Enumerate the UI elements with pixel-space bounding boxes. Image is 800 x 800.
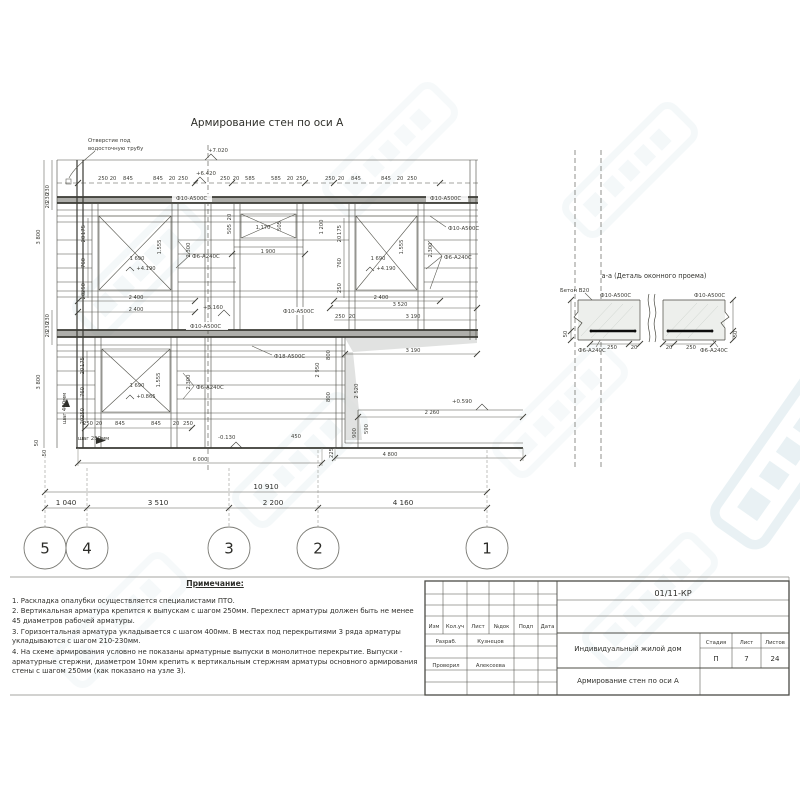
dim-label: +7.020 [208, 148, 229, 154]
axis-number: 5 [40, 540, 50, 558]
project-title: Индивидуальный жилой дом [574, 645, 681, 653]
dim-label: 20 [96, 421, 103, 427]
dim-label: 2 400 [374, 295, 389, 301]
dim-label: 6 000 [193, 457, 208, 463]
dim-label: 760 [337, 258, 343, 268]
dim-label: 1 200 [319, 220, 325, 235]
axis-segment-dimension: 2 200 [263, 498, 284, 507]
dim-label: 845 [123, 176, 133, 182]
tb-stage-value: П [713, 655, 718, 663]
overall-dimension: 10 910 [253, 482, 279, 491]
dim-label: 3 190 [406, 348, 421, 354]
dim-label: 250 [296, 176, 306, 182]
dim-label: +4.190 [376, 266, 395, 272]
dim-label: 800 [326, 350, 332, 360]
tb-role-razrab: Разраб. [436, 639, 457, 645]
tb-col-koluch: Кол.уч [446, 624, 464, 630]
dim-label: 450 [291, 434, 301, 440]
dim-label: 250 [220, 176, 230, 182]
dim-label: 20 [169, 176, 176, 182]
dim-label: 900 [352, 428, 358, 438]
detail-section-a-a [574, 294, 729, 342]
dim-label: 250 [607, 345, 617, 351]
callout-label: Ф10-А500С [600, 293, 631, 299]
dim-label: 20 [45, 331, 51, 338]
callout-label: Ф6-А240С [578, 348, 606, 354]
dim-label: 20 [349, 314, 356, 320]
dim-label: 20 [80, 368, 86, 375]
dim-label: 3 520 [393, 302, 408, 308]
callout-label: Отверстие под [88, 138, 131, 144]
dim-label: 505 [227, 224, 233, 234]
dim-label: 50 [34, 440, 40, 447]
dim-label: 585 [271, 176, 281, 182]
callout-label: Ф6-А240С [444, 255, 472, 261]
window-outlines-and-diagonals [99, 214, 417, 412]
dim-label: 3 190 [406, 314, 421, 320]
axis-number: 3 [224, 540, 234, 558]
dim-label: 1 900 [261, 249, 276, 255]
dim-label: 250 [178, 176, 188, 182]
dim-label: 2.300 [186, 375, 192, 390]
dim-label: 590 [364, 424, 370, 434]
tb-col-podp: Подп [519, 624, 533, 630]
tb-stage-header: Стадия [706, 640, 726, 646]
axis-number: 2 [313, 540, 323, 558]
callout-label: Ф6-А240С [192, 254, 220, 260]
dim-label: 50 [563, 331, 569, 338]
callout-label: шаг 250мм [78, 436, 109, 442]
dim-label: 800 [326, 392, 332, 402]
tb-col-ndok: №док [494, 624, 510, 630]
tb-sheet-header: Лист [740, 640, 753, 646]
dim-label: 20 [338, 176, 345, 182]
dim-label: 20 [45, 202, 51, 209]
tb-col-izm: Изм [429, 624, 440, 630]
cad-drawing-canvas: Армирование стен по оси А а-а (Деталь ок… [0, 0, 800, 800]
dim-label: -0.130 [218, 435, 236, 441]
dim-label: 225 [329, 448, 335, 458]
dim-label: 845 [115, 421, 125, 427]
dim-label: 1 690 [371, 256, 386, 262]
dim-label: 20 [631, 345, 638, 351]
dim-label: 20 [173, 421, 180, 427]
callout-label: Ф6-А240С [196, 385, 224, 391]
dim-label: 250 [83, 421, 93, 427]
callout-label: Ф10-А500С [430, 196, 461, 202]
callout-label: водосточную трубу [88, 146, 144, 152]
dim-label: 250 [98, 176, 108, 182]
dim-label: 20 [397, 176, 404, 182]
dim-label: 585 [245, 176, 255, 182]
dim-label: 1 690 [130, 383, 145, 389]
tb-sheets-header: Листов [765, 640, 785, 646]
dim-label: 175 [81, 225, 87, 235]
dim-label: 20 [227, 214, 233, 221]
dim-label: 760 [80, 387, 86, 397]
note-item: 4. На схеме армирования условно не показ… [12, 648, 418, 677]
axis-number: 1 [482, 540, 492, 558]
dim-label: 845 [351, 176, 361, 182]
dim-label: 760 [81, 258, 87, 268]
axis-segment-dimension: 3 510 [148, 498, 169, 507]
dim-label: 2 520 [354, 384, 360, 399]
dim-label: 20 [337, 236, 343, 243]
note-item: 3. Горизонтальная арматура укладывается … [12, 628, 418, 647]
dim-label: 175 [337, 225, 343, 235]
tb-name-proveril: Алексеева [476, 663, 505, 669]
dim-label: +0.865 [136, 394, 155, 400]
detail-title: а-а (Деталь оконного проема) [602, 272, 707, 280]
note-item: 2. Вертикальная арматура крепится к выпу… [12, 607, 418, 626]
drawing-title: Армирование стен по оси А [191, 117, 344, 129]
callout-label: Ф10-А500С [190, 324, 221, 330]
dim-label: 250 [80, 408, 86, 418]
axis-number: 4 [82, 540, 92, 558]
dim-label: 50 [42, 450, 48, 457]
doc-number: 01/11-КР [654, 588, 691, 598]
dim-label: 20 [110, 176, 117, 182]
tb-sheets-value: 24 [771, 655, 780, 663]
dim-label: 250 [686, 345, 696, 351]
dim-label: 20 [287, 176, 294, 182]
dim-label: 50 [733, 331, 739, 338]
dim-label: +4.190 [136, 266, 155, 272]
dim-label: +0.590 [452, 399, 473, 405]
dim-label: 20 [81, 236, 87, 243]
callout-label: Ф18-А500С [274, 354, 305, 360]
dim-label: 250 [407, 176, 417, 182]
dim-label: 1.170 [256, 225, 271, 231]
notes-block: Примечание: 1. Раскладка опалубки осущес… [12, 579, 418, 678]
dim-label: 3 800 [36, 230, 42, 245]
dim-label: 230 [45, 193, 51, 203]
dim-label: 2 400 [129, 295, 144, 301]
dim-label: +6.420 [196, 171, 217, 177]
dim-label: 250 [183, 421, 193, 427]
axis-segment-dimension: 1 040 [56, 498, 77, 507]
dim-label: 20 [233, 176, 240, 182]
dim-label: 845 [151, 421, 161, 427]
callout-label: Бетон В20 [560, 288, 590, 294]
dim-label: 845 [381, 176, 391, 182]
dim-label: 250 [335, 314, 345, 320]
callout-label: Ф6-А240С [700, 348, 728, 354]
notes-heading: Примечание: [12, 579, 418, 590]
dim-label: 2 260 [425, 410, 440, 416]
dim-label: 250 [337, 283, 343, 293]
dim-label: 250 [325, 176, 335, 182]
dim-label: 1.555 [156, 373, 162, 388]
tb-sheet-value: 7 [744, 655, 748, 663]
dim-label: 250 [81, 283, 87, 293]
callout-label: шаг 400мм [62, 393, 68, 424]
dim-label: 1 690 [130, 256, 145, 262]
tb-name-razrab: Кузнецов [477, 639, 503, 645]
dim-label: +3.160 [203, 305, 224, 311]
callout-label: Ф10-А500С [448, 226, 479, 232]
sheet-title: Армирование стен по оси А [577, 677, 679, 685]
axis-segment-dimension: 4 160 [393, 498, 414, 507]
dim-label: 20 [666, 345, 673, 351]
callout-label: Ф10-А500С [176, 196, 207, 202]
callout-label: Ф10-А500С [694, 293, 725, 299]
dim-label: 1.555 [399, 240, 405, 255]
dim-label: 230 [45, 322, 51, 332]
callout-label: Ф10-А500С [283, 309, 314, 315]
dim-label: 505 [277, 221, 283, 231]
dim-label: 20 [81, 293, 87, 300]
dim-label: 845 [153, 176, 163, 182]
dim-label: 4 800 [383, 452, 398, 458]
window-openings [99, 214, 417, 412]
dim-label: 2 950 [315, 363, 321, 378]
tb-role-proveril: Проверил [432, 663, 459, 669]
slab-thick-lines [57, 197, 523, 448]
dim-label: 3 800 [36, 375, 42, 390]
dim-label: 175 [80, 357, 86, 367]
tb-col-data: Дата [541, 624, 555, 630]
note-item: 1. Раскладка опалубки осуществляется спе… [12, 597, 418, 607]
dim-label: 1.555 [157, 240, 163, 255]
dim-label: 2 400 [129, 307, 144, 313]
tb-col-list: Лист [471, 624, 484, 630]
dim-label: 2.300 [428, 243, 434, 258]
